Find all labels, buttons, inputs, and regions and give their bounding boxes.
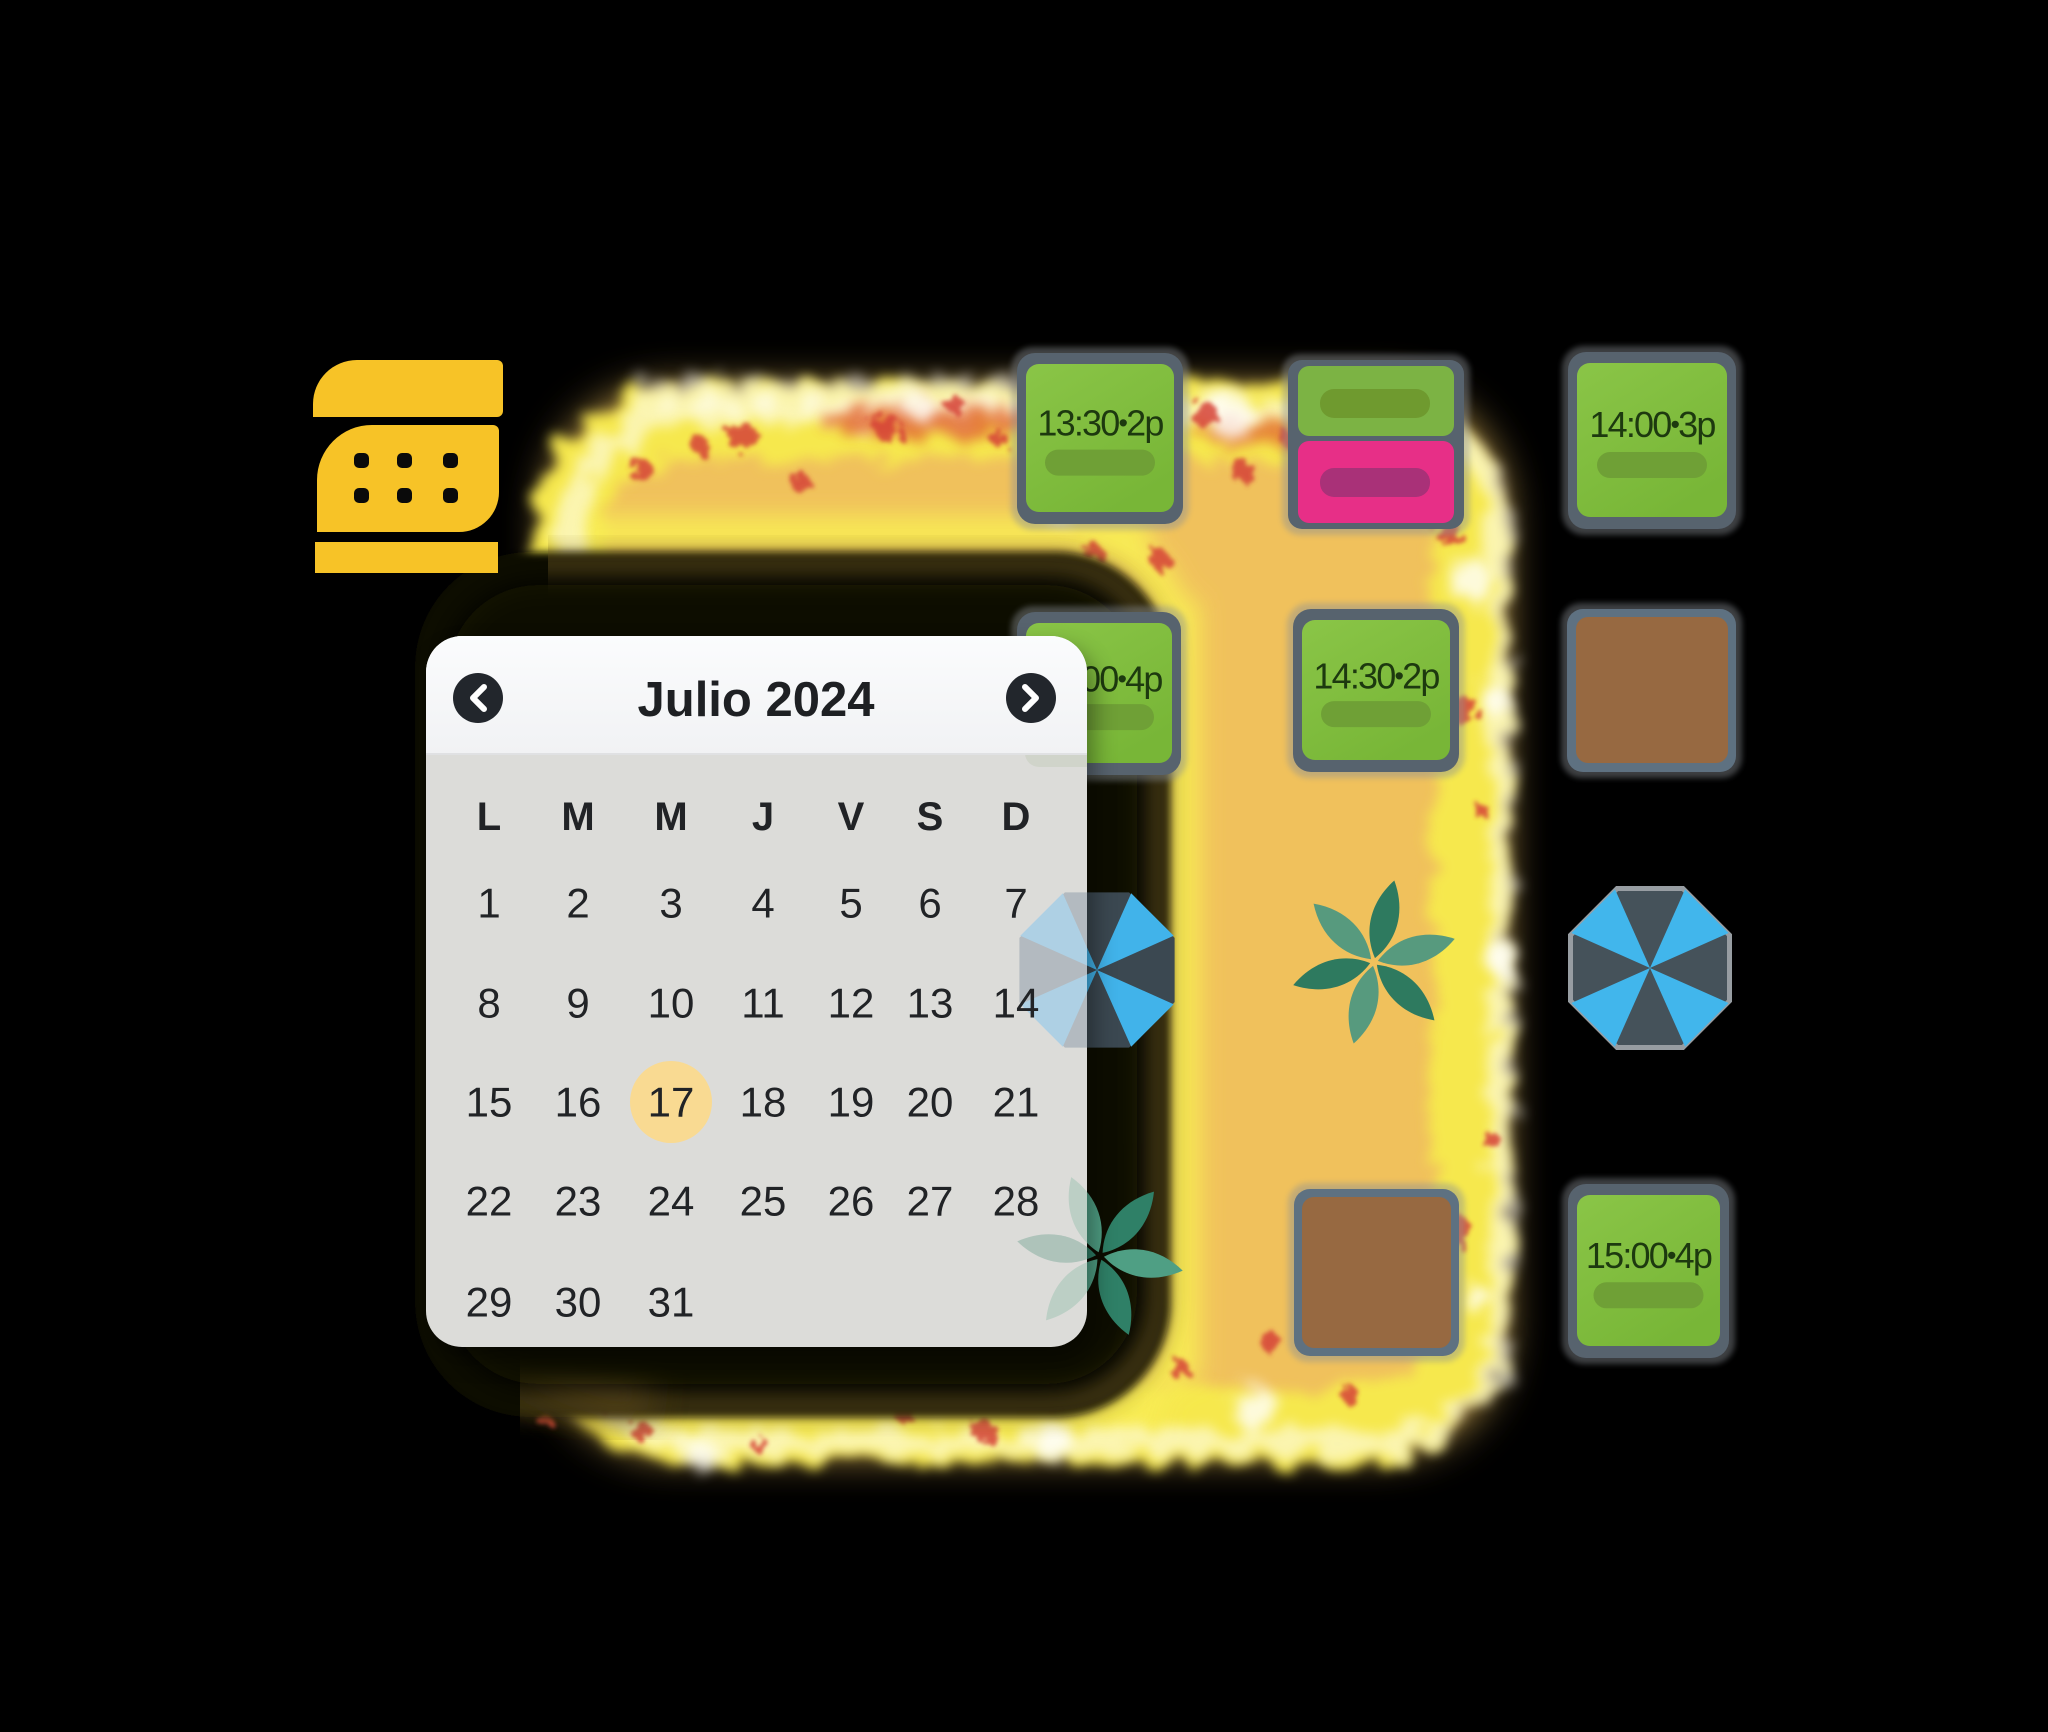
svg-text:17: 17 <box>648 1079 695 1126</box>
svg-text:30: 30 <box>555 1279 602 1326</box>
svg-text:27: 27 <box>907 1178 954 1225</box>
svg-text:M: M <box>561 795 594 839</box>
svg-text:7: 7 <box>1004 880 1027 927</box>
svg-text:1: 1 <box>477 880 500 927</box>
svg-text:31: 31 <box>648 1279 695 1326</box>
svg-text:10: 10 <box>648 980 695 1027</box>
svg-text:25: 25 <box>740 1178 787 1225</box>
svg-text:8: 8 <box>477 980 500 1027</box>
svg-text:13: 13 <box>907 980 954 1027</box>
svg-text:11: 11 <box>741 980 785 1027</box>
svg-text:15:00•4p: 15:00•4p <box>1586 1235 1712 1276</box>
svg-text:V: V <box>838 795 865 839</box>
svg-text:4: 4 <box>751 880 774 927</box>
svg-text:5: 5 <box>839 880 862 927</box>
svg-text:21: 21 <box>993 1079 1040 1126</box>
svg-text:23: 23 <box>555 1178 602 1225</box>
svg-text:J: J <box>752 795 774 839</box>
svg-text:13:30•2p: 13:30•2p <box>1037 403 1163 444</box>
svg-text:16: 16 <box>555 1079 602 1126</box>
svg-text:S: S <box>917 795 944 839</box>
svg-text:L: L <box>477 795 501 839</box>
svg-text:9: 9 <box>566 980 589 1027</box>
svg-text:12: 12 <box>828 980 875 1027</box>
svg-text:29: 29 <box>466 1279 513 1326</box>
svg-text:24: 24 <box>648 1178 695 1225</box>
svg-text:6: 6 <box>918 880 941 927</box>
svg-text:18: 18 <box>740 1079 787 1126</box>
svg-text:15: 15 <box>466 1079 513 1126</box>
svg-text:2: 2 <box>566 880 589 927</box>
svg-text:19: 19 <box>828 1079 875 1126</box>
svg-text:M: M <box>654 795 687 839</box>
svg-text:D: D <box>1002 795 1031 839</box>
svg-text:22: 22 <box>466 1178 513 1225</box>
svg-text:14:00•3p: 14:00•3p <box>1589 404 1715 445</box>
svg-text:3: 3 <box>659 880 682 927</box>
svg-text:Julio 2024: Julio 2024 <box>638 673 875 727</box>
svg-text:20: 20 <box>907 1079 954 1126</box>
svg-text:28: 28 <box>993 1178 1040 1225</box>
svg-text:26: 26 <box>828 1178 875 1225</box>
svg-text:14: 14 <box>993 980 1040 1027</box>
svg-text:14:30•2p: 14:30•2p <box>1313 655 1439 696</box>
